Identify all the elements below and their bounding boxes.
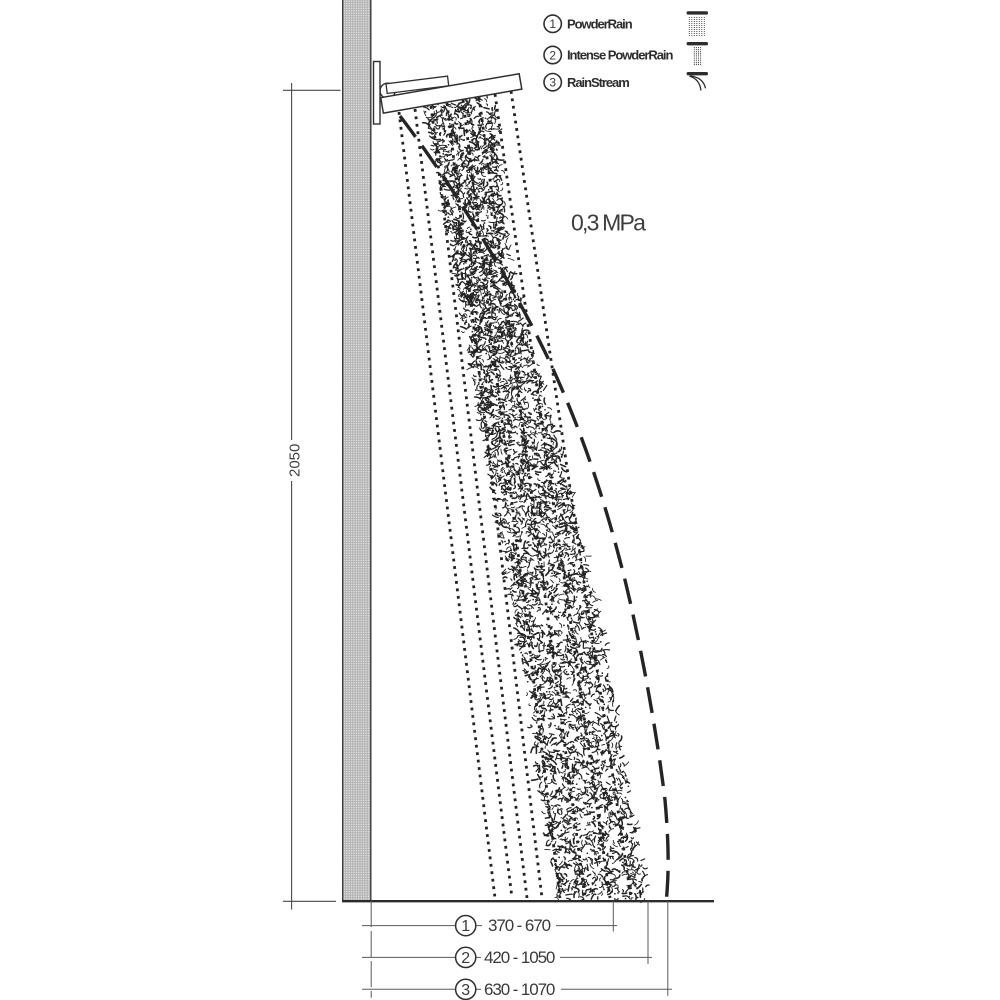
svg-text:1: 1 (549, 17, 556, 31)
svg-text:3: 3 (461, 982, 470, 999)
svg-text:420 - 1050: 420 - 1050 (484, 948, 555, 967)
svg-text:PowderRain: PowderRain (567, 17, 633, 32)
svg-text:630 - 1070: 630 - 1070 (484, 980, 555, 999)
svg-text:2: 2 (461, 950, 470, 967)
svg-text:RainStream: RainStream (567, 75, 629, 90)
svg-text:1: 1 (461, 918, 470, 935)
svg-text:370 - 670: 370 - 670 (488, 916, 551, 935)
svg-text:2: 2 (549, 48, 556, 62)
svg-text:0,3 MPa: 0,3 MPa (571, 210, 646, 236)
svg-text:3: 3 (549, 76, 556, 90)
svg-text:2050: 2050 (286, 444, 303, 477)
svg-text:Intense PowderRain: Intense PowderRain (567, 48, 673, 63)
